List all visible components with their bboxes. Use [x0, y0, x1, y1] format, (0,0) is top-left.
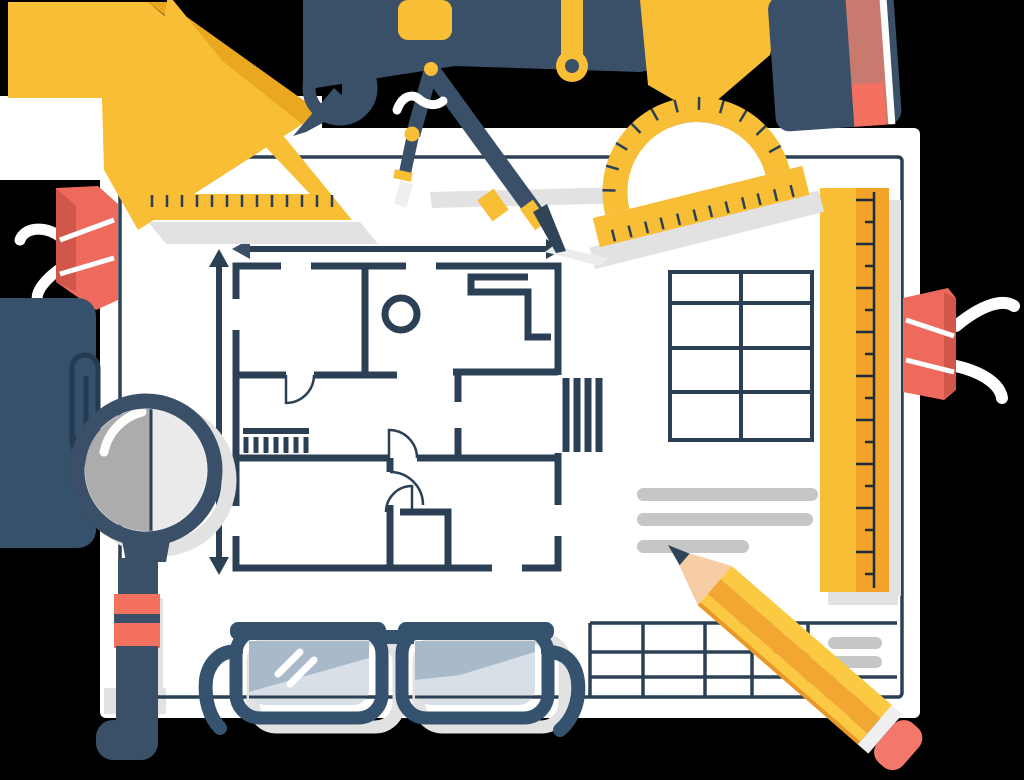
- bar-clamp-tab: [398, 0, 452, 40]
- glasses-bridge: [374, 630, 414, 644]
- underlay-rect-left: [0, 96, 112, 180]
- set-square-shadow: [148, 222, 378, 244]
- blueprint-illustration: [0, 0, 1024, 780]
- window-left-2: [231, 506, 240, 536]
- window-top-1: [281, 261, 311, 270]
- clip-right-facet: [944, 292, 956, 398]
- magnifier-handle-top: [118, 558, 158, 598]
- window-bottom: [492, 563, 522, 572]
- glasses-browbar-right: [398, 622, 554, 640]
- bar-strip: [561, 0, 583, 58]
- bar-ring-hole: [565, 59, 579, 73]
- glasses-browbar-left: [230, 622, 386, 640]
- text-line-4: [828, 637, 882, 649]
- hatch-teeth: [246, 437, 306, 453]
- compass-pivot-dot: [424, 62, 438, 76]
- window-right: [553, 505, 563, 536]
- eraser-band-bright: [851, 83, 886, 127]
- ruler-shadow-bottom: [828, 592, 898, 605]
- compass-rod: [363, 14, 373, 64]
- window-left-1: [231, 299, 240, 330]
- eraser: [767, 0, 902, 132]
- ruler-body-yellow: [820, 188, 856, 592]
- text-line-1: [637, 488, 818, 501]
- magnifier-handle-foot: [96, 720, 158, 760]
- ruler: [820, 188, 901, 605]
- text-line-3: [637, 540, 749, 553]
- text-line-2: [637, 513, 813, 526]
- illustration-stage: [0, 0, 1024, 780]
- ruler-body-orange: [856, 188, 889, 592]
- compass-joint-dot: [405, 127, 420, 142]
- magnifier-band-stripe: [114, 614, 160, 623]
- ruler-shadow-right: [889, 200, 901, 596]
- window-top-2: [406, 261, 436, 270]
